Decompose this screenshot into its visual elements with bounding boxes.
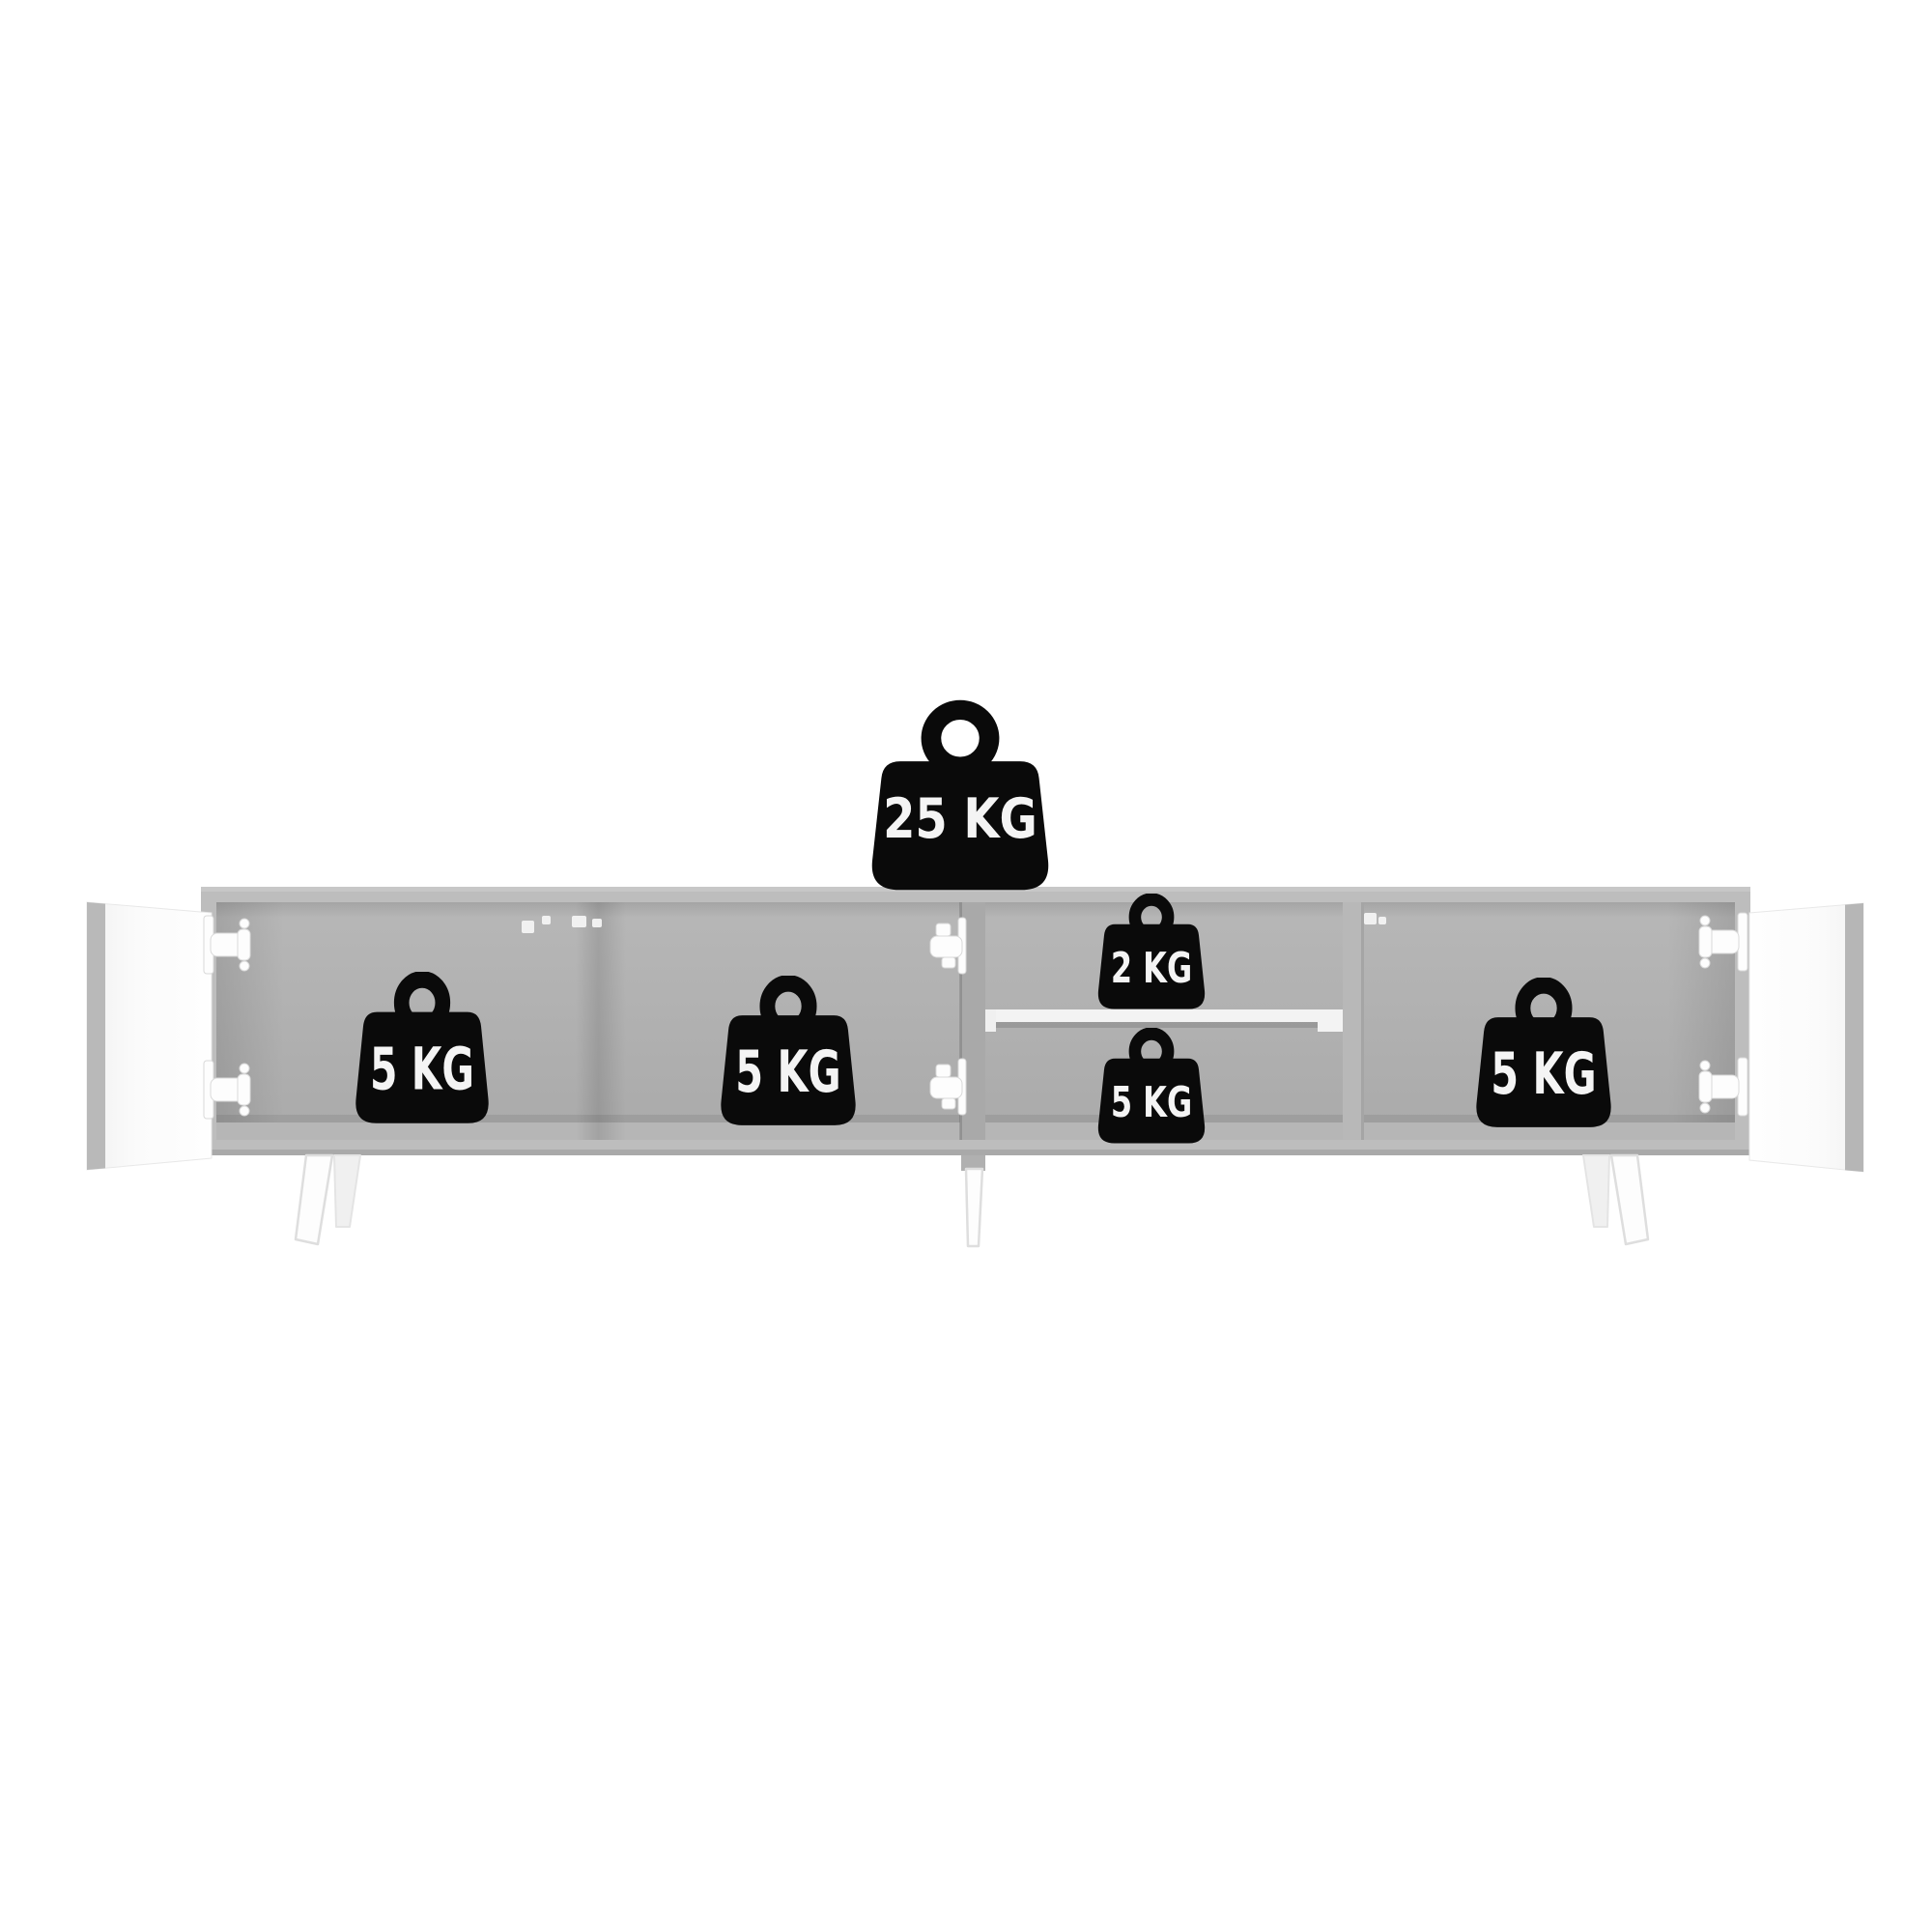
left-front-leg [296, 1155, 332, 1244]
diagram-canvas: 25 KG 5 KG 5 KG 2 KG 5 KG 5 KG [0, 0, 1932, 1932]
weight-label: 25 KG [883, 787, 1037, 851]
hinge-screw [240, 1106, 249, 1116]
hinge-arm [930, 1077, 962, 1098]
right-door [1749, 903, 1863, 1172]
pin-speck [522, 921, 534, 933]
weight-label: 5 KG [1111, 1079, 1192, 1128]
pin-speck [592, 919, 602, 927]
weight-handle-icon [931, 710, 989, 767]
right-door-edge [1845, 903, 1863, 1172]
weight-label: 5 KG [370, 1036, 474, 1104]
hinge-screw [240, 1064, 249, 1073]
tv-stand-weight-capacity-diagram: 25 KG 5 KG 5 KG 2 KG 5 KG 5 KG [0, 0, 1932, 1932]
hinge-screw [1700, 1061, 1710, 1070]
shelf-under-shadow [985, 1022, 1343, 1028]
left-door-edge [87, 902, 105, 1170]
weight-label: 2 KG [1111, 945, 1192, 994]
hinge-cup [1699, 926, 1712, 957]
hinge-screw [240, 961, 249, 971]
shelf-left-bracket [985, 1009, 996, 1032]
left-door [87, 902, 212, 1170]
legs-middle [961, 1155, 985, 1246]
hinge-screw [240, 919, 249, 928]
pin-speck [1364, 913, 1377, 924]
shelf-right-bracket [1318, 1009, 1343, 1032]
weight-label: 5 KG [735, 1038, 840, 1106]
hinge-step [936, 1065, 951, 1077]
right-front-leg [1611, 1155, 1648, 1244]
legs-right [1583, 1155, 1648, 1244]
left-back-leg [334, 1155, 360, 1227]
hinge-cup [1699, 1071, 1712, 1102]
weight-badge-top-panel: 25 KG [872, 710, 1049, 890]
divider-right-edge [1361, 902, 1364, 1140]
weight-label: 5 KG [1491, 1040, 1596, 1108]
right-back-leg [1583, 1155, 1609, 1227]
pin-speck [1378, 917, 1386, 924]
middle-front-leg [966, 1169, 982, 1246]
hinge-foot [942, 1098, 955, 1109]
hinge-screw [1700, 1103, 1710, 1113]
pin-speck [542, 916, 551, 924]
hinge-cup [238, 929, 250, 960]
hinge-screw [1700, 916, 1710, 925]
pin-speck [572, 916, 586, 927]
hinge-cup [238, 1074, 250, 1105]
cabinet-bottom-edge-shadow [201, 1150, 1750, 1155]
legs-left [296, 1155, 360, 1244]
legs [296, 1155, 1648, 1246]
hinge-screw [1700, 958, 1710, 968]
shelf-top [985, 1009, 1343, 1022]
left-door-face [87, 902, 212, 1170]
hinge-foot [942, 957, 955, 968]
hinge-step [936, 923, 951, 936]
divider-left [576, 902, 626, 1140]
hinge-arm [930, 936, 962, 957]
divider-right [1343, 902, 1364, 1140]
